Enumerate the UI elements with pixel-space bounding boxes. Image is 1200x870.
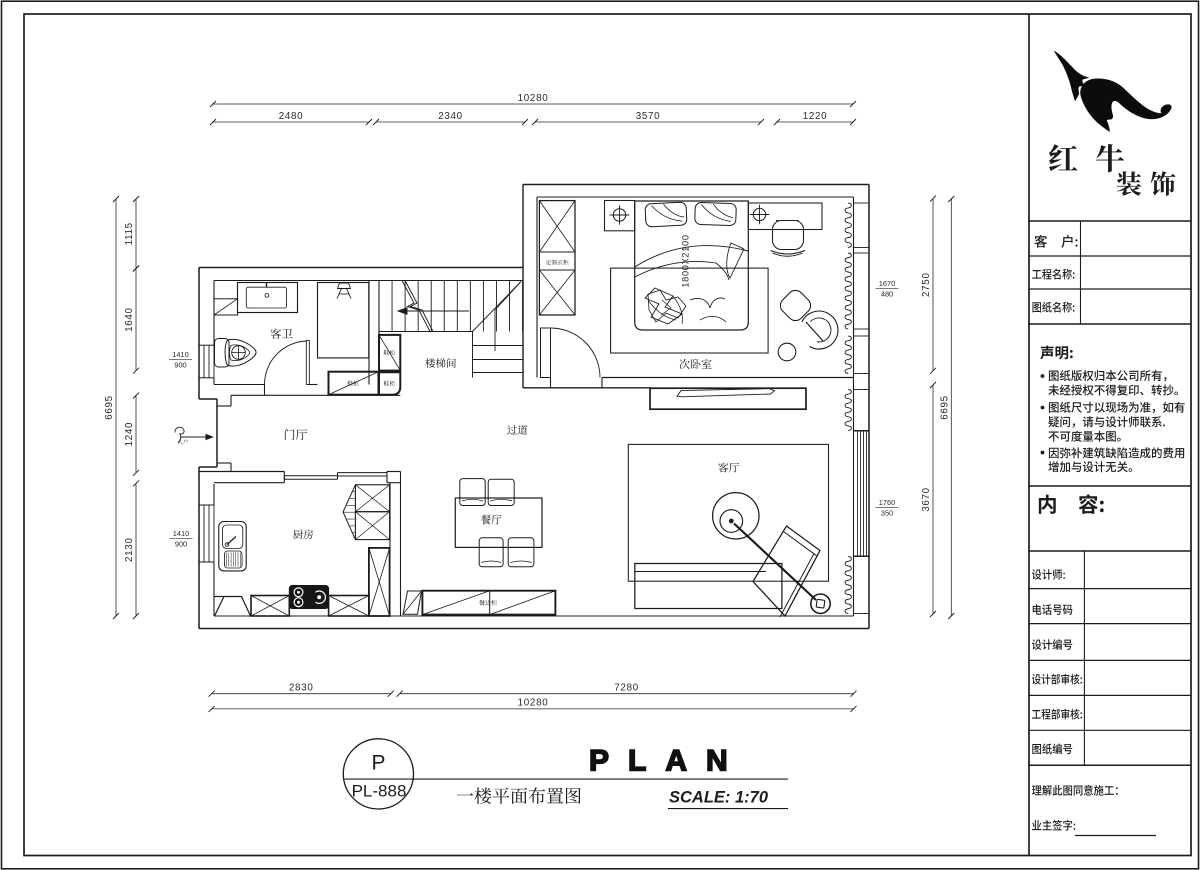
svg-text:SCALE: 1:70: SCALE: 1:70 [669, 789, 769, 807]
svg-text:1670: 1670 [879, 279, 895, 288]
svg-text:1640: 1640 [124, 307, 135, 332]
svg-text:900: 900 [174, 361, 186, 370]
svg-text:2480: 2480 [279, 111, 304, 122]
svg-text:1220: 1220 [803, 111, 828, 122]
svg-text:2130: 2130 [124, 537, 135, 562]
svg-text:7280: 7280 [614, 683, 639, 694]
svg-text:10280: 10280 [518, 93, 549, 104]
svg-text:3670: 3670 [921, 487, 932, 512]
svg-text:1410: 1410 [172, 350, 188, 359]
svg-text:10280: 10280 [518, 698, 549, 709]
svg-text:2750: 2750 [921, 272, 932, 297]
svg-text:1240: 1240 [124, 422, 135, 447]
svg-text:480: 480 [881, 290, 893, 299]
svg-text:2340: 2340 [438, 111, 463, 122]
svg-text:PL-888: PL-888 [352, 782, 407, 801]
svg-text:P: P [371, 752, 385, 775]
svg-text:PLAN: PLAN [589, 745, 747, 778]
svg-text:1760: 1760 [879, 498, 895, 507]
svg-text:2830: 2830 [289, 683, 314, 694]
svg-text:1800X2100: 1800X2100 [681, 234, 691, 287]
svg-text:1410: 1410 [173, 529, 189, 538]
svg-text:1115: 1115 [124, 222, 135, 245]
svg-text:6695: 6695 [940, 395, 951, 420]
svg-text:900: 900 [175, 540, 187, 549]
svg-text:3570: 3570 [636, 111, 661, 122]
svg-text:350: 350 [881, 509, 893, 518]
svg-text:6695: 6695 [104, 395, 115, 420]
